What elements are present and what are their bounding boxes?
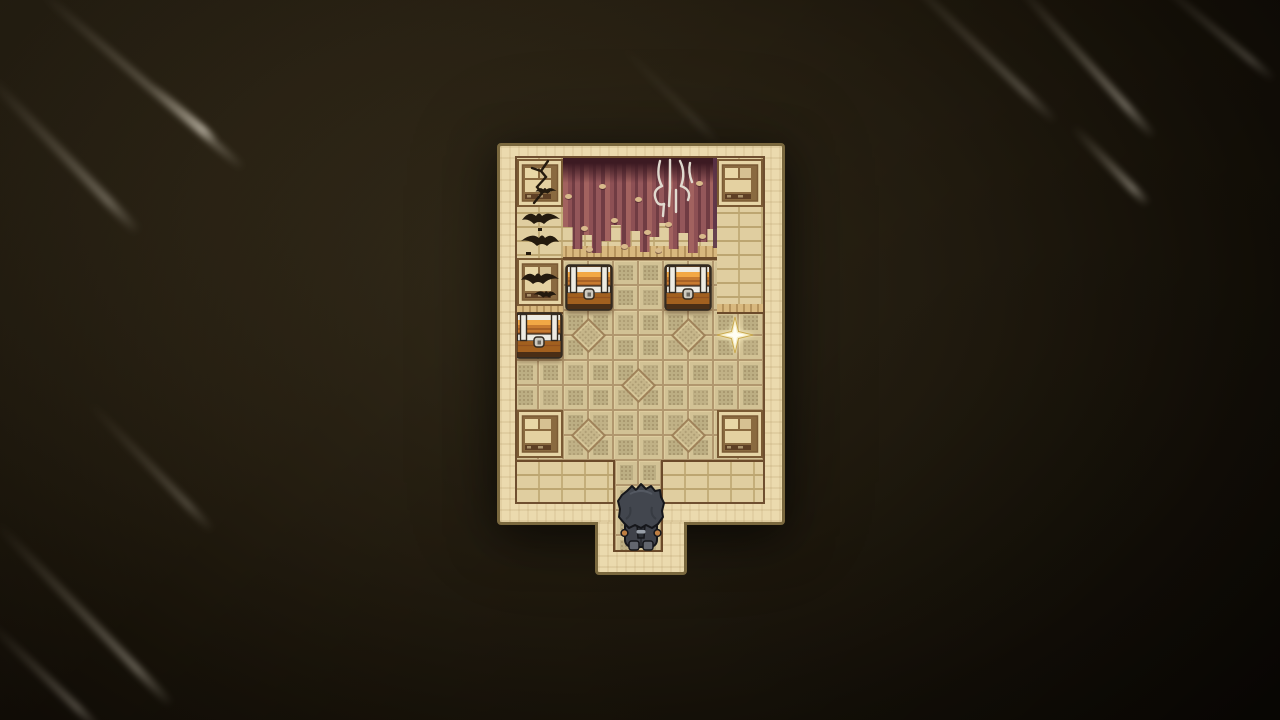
crate-tile [717,159,763,207]
candelabra-decoration [648,158,702,222]
floor-tile-inset [618,315,633,330]
floor-tile-inset [743,365,758,380]
floor-tile [517,360,538,385]
floor-tile-inset [668,365,683,380]
floor-tile-inset [593,390,608,405]
column-ledge [717,304,763,314]
floor-tile-inset [618,265,633,280]
crate-tile [517,410,563,458]
bat-swarm [518,204,563,260]
floor-tile [638,410,663,435]
floor-tile-inset [643,440,658,455]
treasure-chest[interactable] [664,264,712,311]
floor-tile [638,335,663,360]
floor-tile [688,385,713,410]
floor-tile-inset [618,340,633,355]
floor-tile [738,360,763,385]
floor-tile-inset [643,315,658,330]
floor-tile [538,360,563,385]
floor-tile [588,385,613,410]
floor-tile [588,360,613,385]
floor-tile [738,385,763,410]
curtain-moth-spot [586,247,593,252]
curtain-moth-spot [644,230,651,235]
floor-tile-inset [718,365,733,380]
floor-tile-inset [618,440,633,455]
floor-tile [563,360,588,385]
floor-tile [517,385,538,410]
floor-tile [613,435,638,460]
floor-tile-inset [743,390,758,405]
floor-tile-inset [568,390,583,405]
cracked-crate-tile [517,159,563,207]
floor-tile-inset [518,365,533,380]
floor-tile-inset [718,390,733,405]
curtain-moth-spot [621,244,628,249]
crate-tile [717,410,763,458]
bat-crate-tile [517,258,563,306]
floor-tile [688,360,713,385]
floor-tile-inset [643,265,658,280]
floor-tile [713,360,738,385]
floor-tile-inset [643,465,656,480]
floor-tile-inset [693,390,708,405]
curtain-moth-spot [611,218,618,223]
floor-tile [638,285,663,310]
floor-tile-inset [543,365,558,380]
floor-tile-inset [620,465,633,480]
floor-tile-inset [643,290,658,305]
floor-tile [638,260,663,285]
curtain-moth-spot [699,234,706,239]
floor-tile [713,385,738,410]
curtain-moth-spot [581,226,588,231]
curtain-moth-spot [655,248,662,253]
curtain-moth-spot [635,197,642,202]
floor-tile [663,385,688,410]
bottom-wall-bricks [663,460,763,502]
game-viewport[interactable] [0,0,1280,720]
floor-tile-inset [518,390,533,405]
floor-tile-inset [643,340,658,355]
floor-tile-inset [543,390,558,405]
floor-tile-inset [618,415,633,430]
floor-tile [613,285,638,310]
curtain-moth-spot [665,222,672,227]
floor-tile-inset [643,415,658,430]
item-sparkle[interactable] [715,315,755,355]
floor-tile-inset [568,365,583,380]
floor-tile [538,385,563,410]
floor-tile [613,410,638,435]
floor-tile-inset [618,290,633,305]
floor-tile [613,335,638,360]
floor-tile [663,360,688,385]
floor-tile-inset [693,365,708,380]
bottom-wall-bricks [517,460,613,502]
room-interior [517,158,763,502]
floor-tile [613,260,638,285]
floor-tile [563,385,588,410]
treasure-chest[interactable] [517,312,563,359]
floor-tile-inset [593,365,608,380]
player-character[interactable] [616,481,666,553]
curtain-moth-spot [599,184,606,189]
floor-tile [638,310,663,335]
floor-tile [638,435,663,460]
curtain-moth-spot [565,194,572,199]
treasure-chest[interactable] [565,264,613,311]
floor-tile-inset [668,390,683,405]
floor-tile [613,310,638,335]
